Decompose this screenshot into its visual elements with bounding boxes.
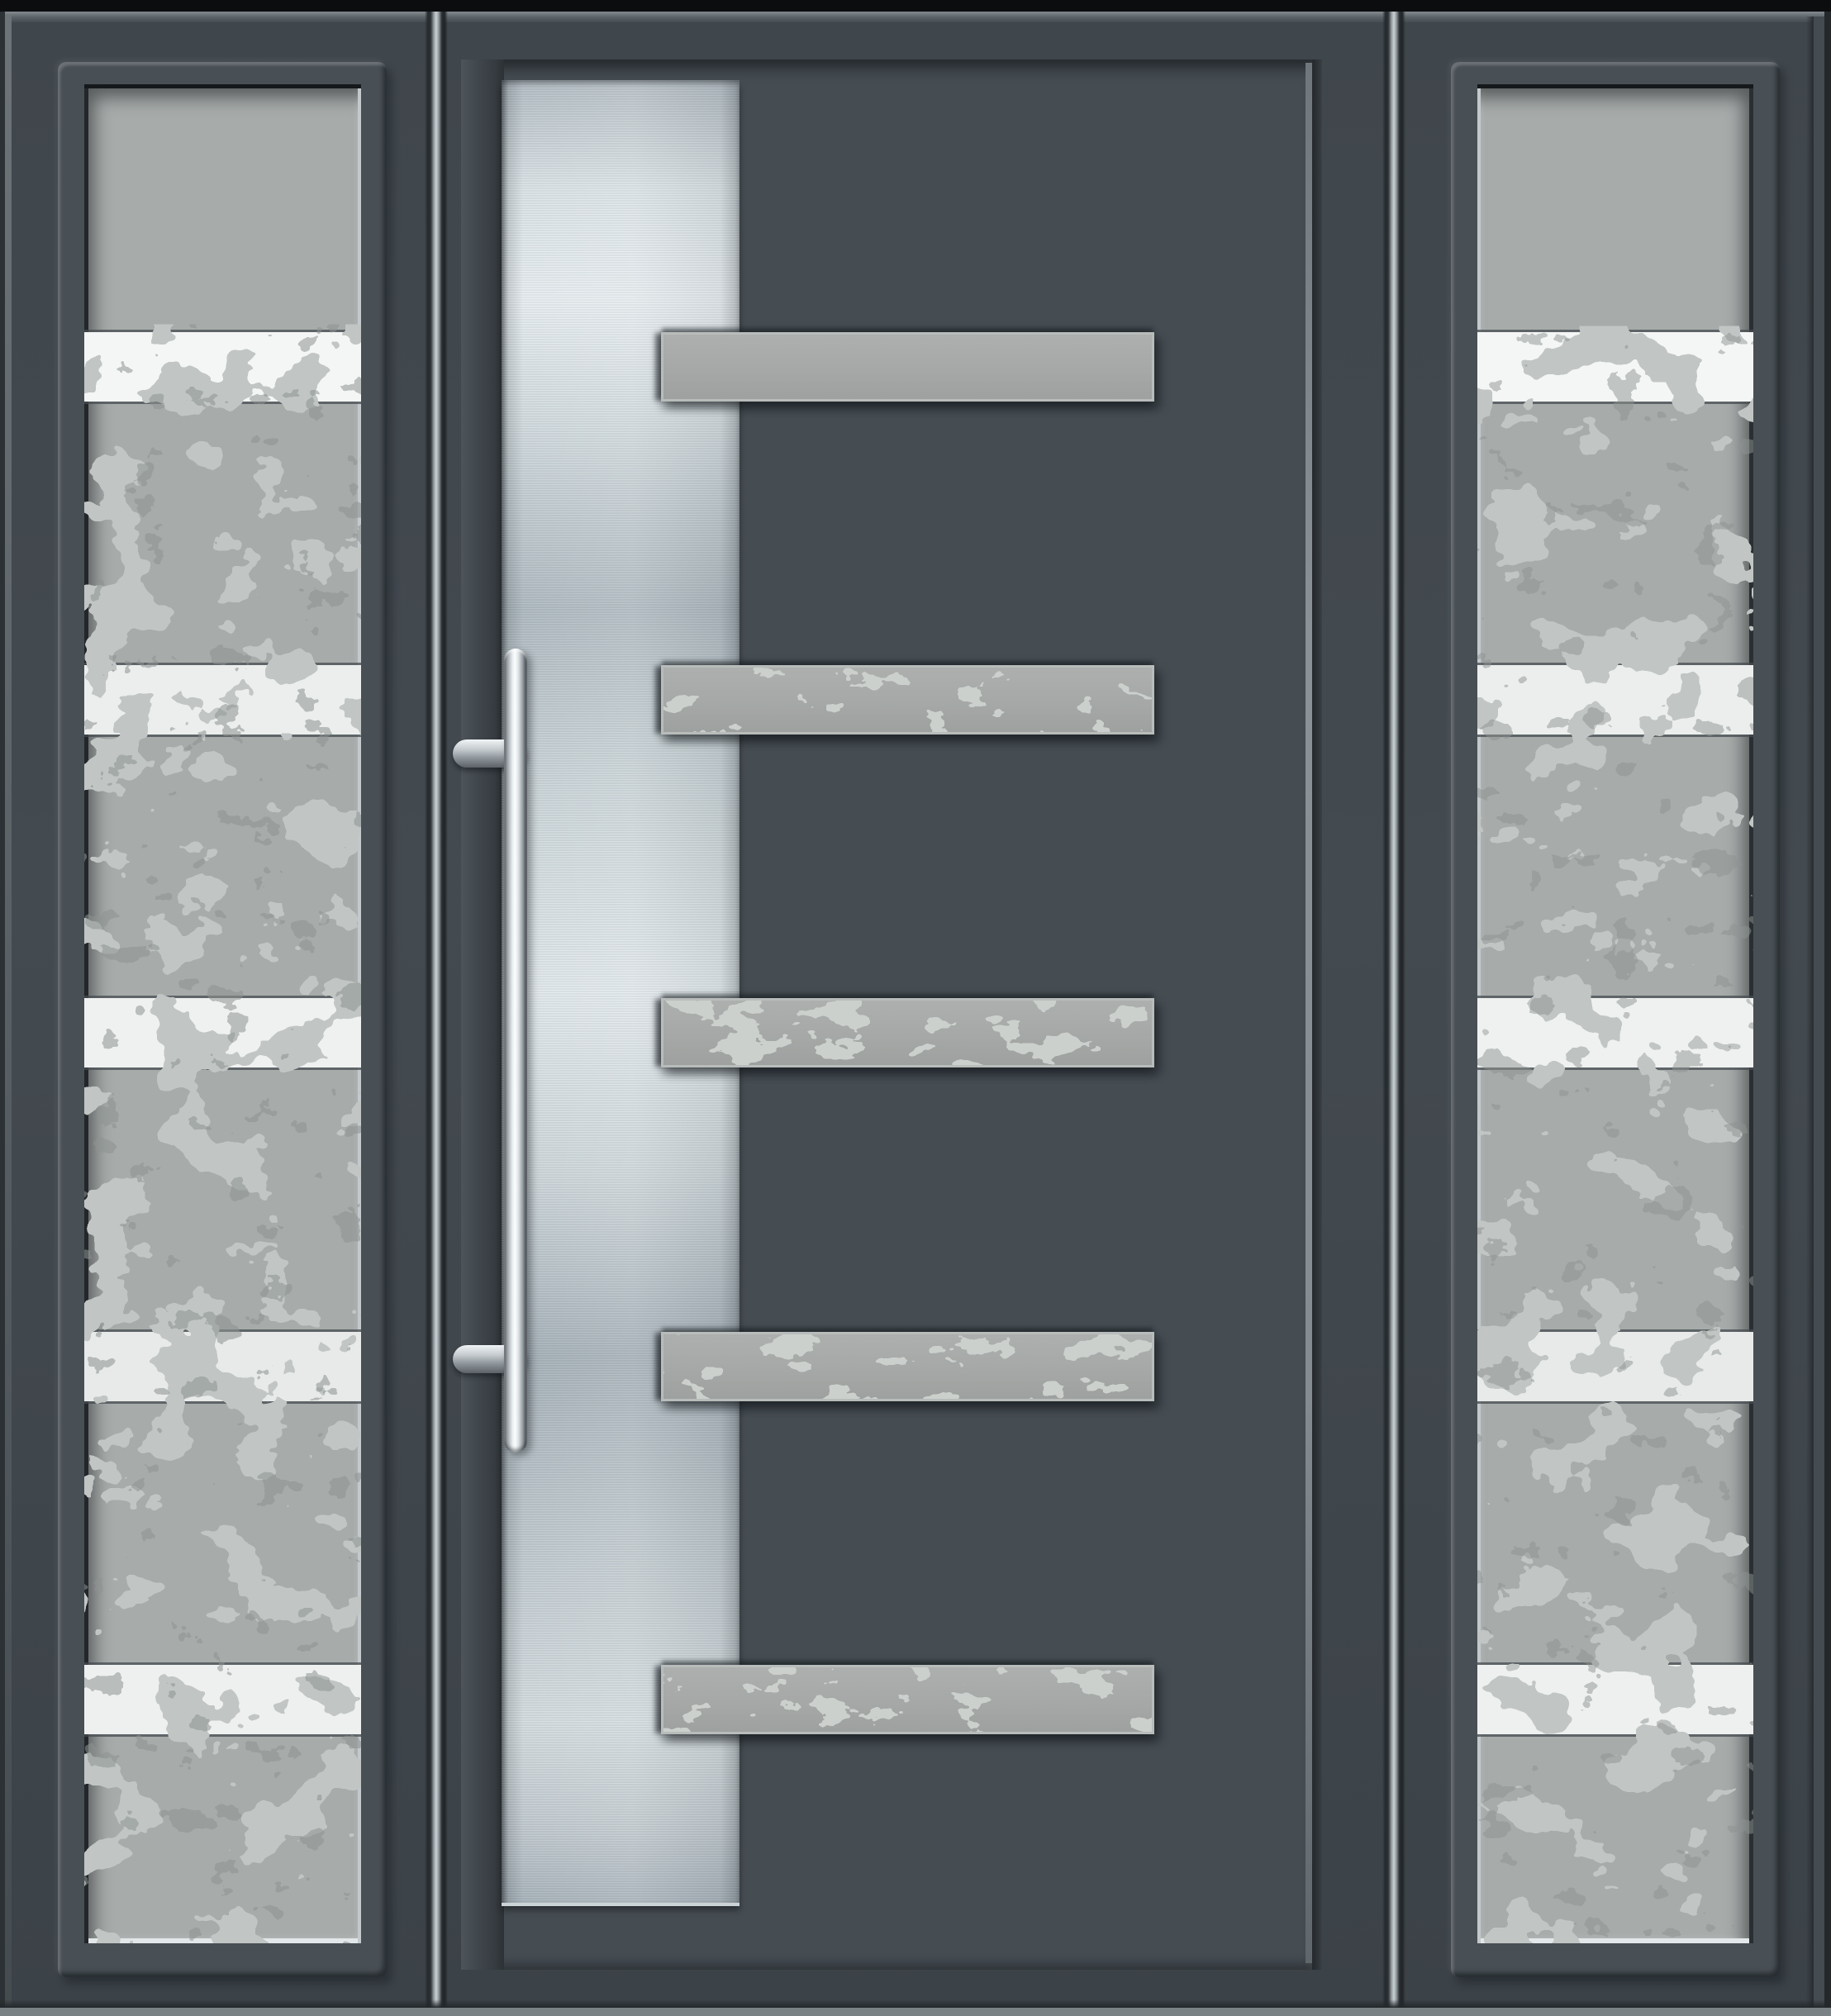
frame-left-edge-highlight bbox=[5, 15, 12, 2008]
door-glazing-strip bbox=[661, 665, 1154, 735]
door-glazing-strip bbox=[661, 332, 1154, 402]
foliage-reflection-layer bbox=[84, 84, 361, 1943]
threshold-shadow bbox=[0, 1999, 1831, 2008]
frame-top-highlight bbox=[0, 12, 1831, 22]
right-sidelight-glass bbox=[1477, 84, 1753, 1943]
door-leaf-left-stile bbox=[461, 59, 504, 1970]
door-leaf-right-rebate-shadow bbox=[1312, 59, 1322, 1970]
frame-right-edge-seam bbox=[1806, 17, 1814, 2008]
foliage-reflection-layer bbox=[663, 1334, 1152, 1399]
left-sidelight-frame bbox=[58, 62, 387, 1977]
door-glazing-strip bbox=[661, 1665, 1154, 1734]
foliage-reflection-layer bbox=[663, 1001, 1152, 1065]
door-glazing-strip bbox=[661, 998, 1154, 1067]
door-leaf-right-edge-highlight bbox=[1305, 63, 1312, 1963]
frame-right-edge-face bbox=[1814, 17, 1824, 2008]
mullion-divider-left bbox=[425, 12, 448, 2008]
foliage-reflection-layer bbox=[1477, 84, 1753, 1943]
left-sidelight-glass bbox=[84, 84, 361, 1943]
foliage-reflection-layer bbox=[663, 1667, 1152, 1732]
front-door-elevation bbox=[0, 0, 1831, 2016]
right-sidelight-frame bbox=[1451, 62, 1780, 1977]
mullion-divider-right bbox=[1382, 12, 1405, 2008]
door-glazing-strip bbox=[661, 1332, 1154, 1401]
frame-right-edge-shadow bbox=[1824, 12, 1831, 2016]
threshold-strip bbox=[0, 2008, 1831, 2016]
door-pull-handle bbox=[504, 649, 527, 1453]
top-wall-strip bbox=[0, 0, 1831, 12]
foliage-reflection-layer bbox=[663, 668, 1152, 732]
